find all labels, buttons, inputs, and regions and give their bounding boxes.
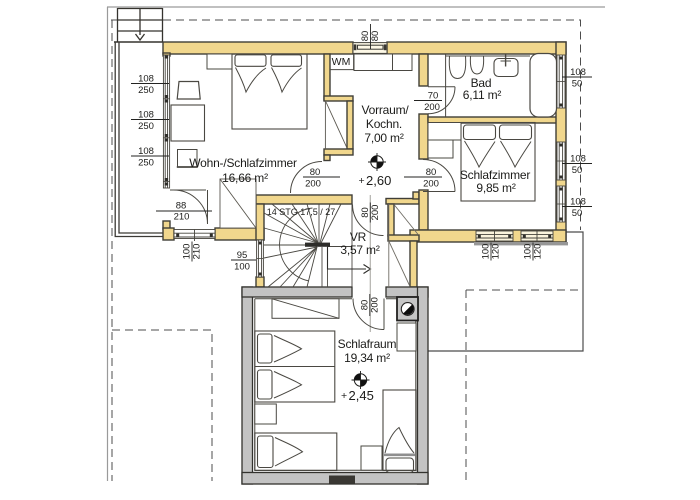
svg-text:+: + xyxy=(341,390,347,402)
svg-text:88: 88 xyxy=(176,201,187,212)
svg-text:108: 108 xyxy=(570,67,586,78)
svg-text:3,57 m²: 3,57 m² xyxy=(340,243,379,257)
svg-text:WM: WM xyxy=(332,56,351,68)
svg-text:2,45: 2,45 xyxy=(349,388,374,403)
svg-text:50: 50 xyxy=(572,208,583,219)
svg-text:50: 50 xyxy=(572,165,583,176)
svg-text:200: 200 xyxy=(305,179,321,190)
svg-text:200: 200 xyxy=(370,205,381,221)
svg-text:80: 80 xyxy=(310,167,321,178)
svg-text:108: 108 xyxy=(138,110,154,121)
svg-text:70: 70 xyxy=(428,91,439,102)
svg-text:200: 200 xyxy=(424,102,440,113)
svg-text:Vorraum/: Vorraum/ xyxy=(361,103,409,117)
svg-text:9,85 m²: 9,85 m² xyxy=(476,181,515,195)
svg-text:Schlafraum: Schlafraum xyxy=(338,337,397,351)
svg-text:2,60: 2,60 xyxy=(366,173,391,188)
svg-text:95: 95 xyxy=(237,250,248,261)
svg-text:108: 108 xyxy=(570,154,586,165)
svg-text:VR: VR xyxy=(350,230,367,244)
svg-text:250: 250 xyxy=(138,85,154,96)
svg-text:+: + xyxy=(359,175,365,187)
svg-text:100: 100 xyxy=(234,262,250,273)
svg-text:80: 80 xyxy=(370,31,381,42)
svg-text:250: 250 xyxy=(138,158,154,169)
svg-text:200: 200 xyxy=(423,179,439,190)
svg-text:Kochn.: Kochn. xyxy=(366,117,402,131)
svg-text:210: 210 xyxy=(192,244,203,260)
svg-text:108: 108 xyxy=(138,74,154,85)
svg-text:108: 108 xyxy=(570,197,586,208)
svg-text:210: 210 xyxy=(174,212,190,223)
svg-text:Wohn-/Schlafzimmer: Wohn-/Schlafzimmer xyxy=(189,156,297,170)
svg-text:6,11 m²: 6,11 m² xyxy=(463,88,502,102)
svg-text:200: 200 xyxy=(369,297,380,313)
svg-text:Schlafzimmer: Schlafzimmer xyxy=(460,168,530,182)
svg-text:7,00 m²: 7,00 m² xyxy=(364,131,403,145)
svg-text:19,34 m²: 19,34 m² xyxy=(344,351,390,365)
svg-text:50: 50 xyxy=(572,79,583,90)
svg-text:16,66 m²: 16,66 m² xyxy=(222,171,268,185)
svg-text:250: 250 xyxy=(138,121,154,132)
svg-text:108: 108 xyxy=(138,146,154,157)
svg-text:80: 80 xyxy=(426,167,437,178)
svg-text:120: 120 xyxy=(533,244,544,260)
svg-text:14 STG 17,5 / 27: 14 STG 17,5 / 27 xyxy=(267,207,336,217)
svg-text:120: 120 xyxy=(491,244,502,260)
